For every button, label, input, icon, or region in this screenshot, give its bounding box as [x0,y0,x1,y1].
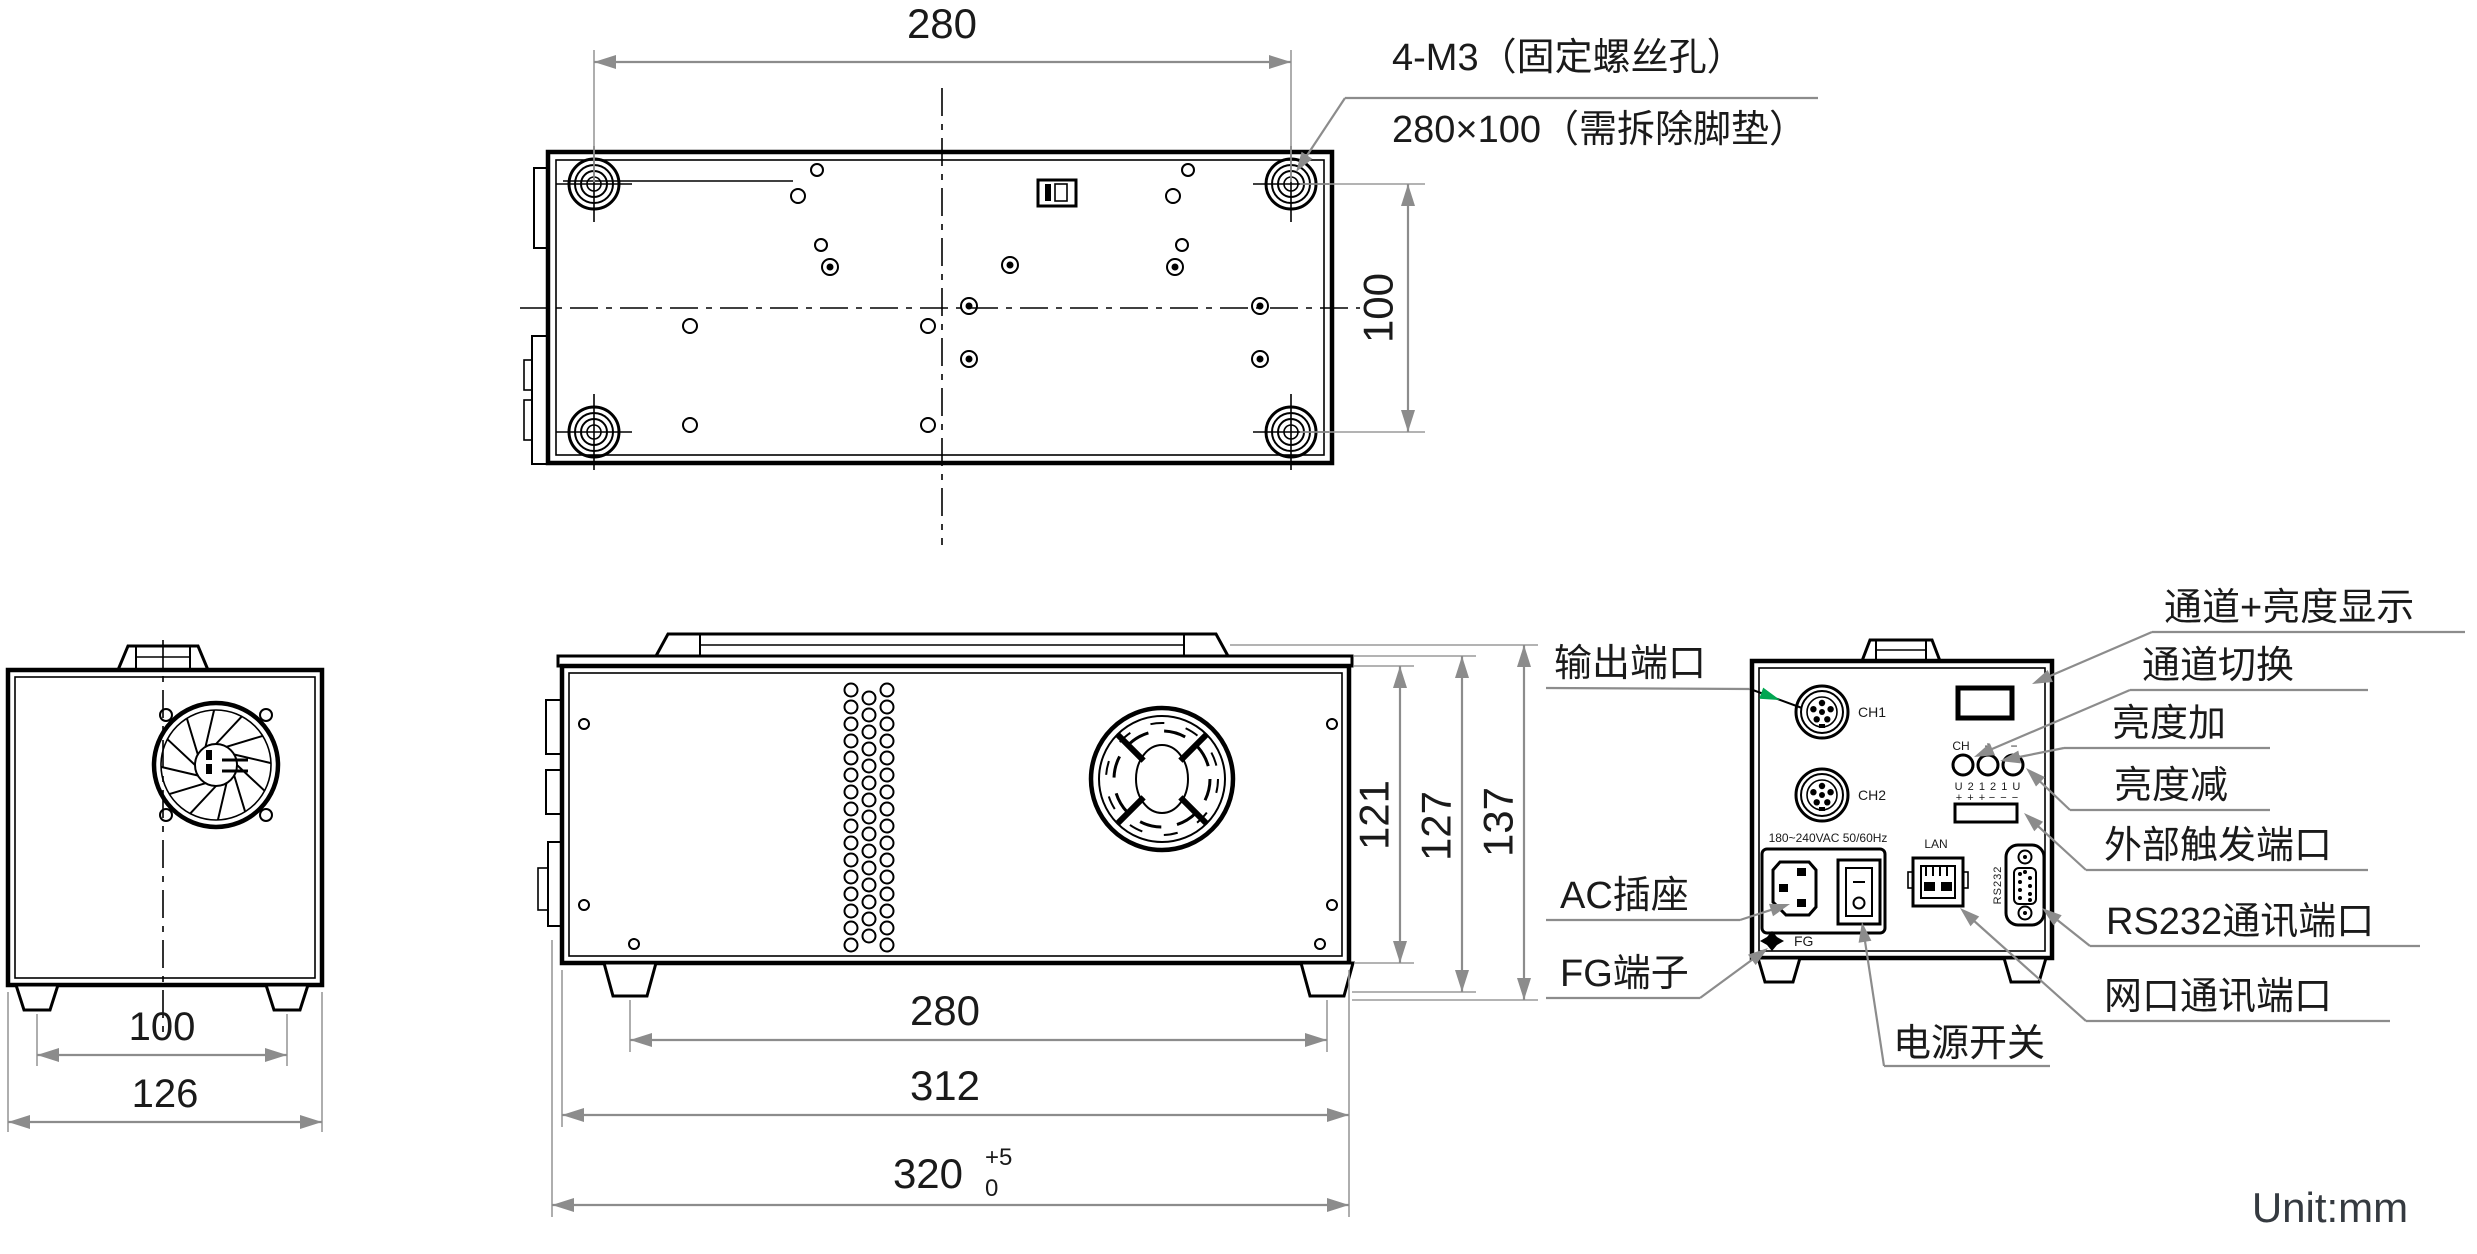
mounting-hole-callout: 4-M3（固定螺丝孔） 280×100（需拆除脚垫） [1296,37,1818,172]
engineering-drawing-canvas: 280 100 4-M3（固定螺丝孔） 280×100（需拆除脚垫） [0,0,2477,1254]
callout-power-switch-text: 电源开关 [1893,1023,2045,1065]
btn-label-ch: CH [1952,739,1969,753]
rs232-port: RS232 [1992,845,2044,925]
dim-label-127: 127 [1413,791,1460,861]
lan-label: LAN [1924,837,1947,851]
voltage-label: 180~240VAC 50/60Hz [1769,831,1888,845]
ac-module [1762,849,1885,933]
callout-display-text: 通道+亮度显示 [2164,587,2414,629]
rear-view: CH1 CH2 CH + − U 2 1 2 1 U + + + − [1546,587,2465,1066]
channel-switch-button [1953,755,1973,775]
vent-holes [845,684,894,952]
callout-output-port-text: 输出端口 [1554,643,1706,685]
rear-handle [1862,640,1940,661]
dim-label-137: 137 [1475,787,1522,857]
front-protrusions [538,700,562,926]
dim-label-280-top: 280 [907,0,977,47]
ch1-connector [1796,686,1848,738]
bottom-screw-holes [683,164,1268,432]
trigger-port [1955,804,2017,822]
dim-100-right: 100 [1300,184,1425,432]
callout-brightness-down: 亮度减 [2026,765,2270,810]
dim-121: 121 [1351,666,1415,963]
callout-lan-text: 网口通讯端口 [2104,976,2332,1018]
ch2-label: CH2 [1858,787,1886,803]
callout-output-port: 输出端口 [1546,643,1802,708]
front-handle [656,634,1228,656]
brightness-up-button [1978,755,1998,775]
callout-brightness-up: 亮度加 [2000,703,2270,763]
dim-label-320: 320 [893,1150,963,1197]
bottom-cutout [1038,180,1076,206]
callout-280x100: 280×100（需拆除脚垫） [1392,109,1807,151]
callout-rs232-text: RS232通讯端口 [2106,901,2374,943]
ch2-connector [1796,769,1848,821]
dim-tol-plus: +5 [985,1144,1012,1171]
callout-brightness-up-text: 亮度加 [2112,703,2226,745]
edge-protrusions [524,168,548,464]
rear-feet [1758,958,2046,982]
callout-trigger-port: 外部触发端口 [2024,813,2368,870]
display-window [1958,688,2012,718]
callout-fg-terminal: FG端子 [1546,948,1768,998]
front-screw-holes [579,719,1337,949]
pin-minus-label: − − − [1989,792,2019,804]
left-side-view: 100 126 [8,640,322,1132]
left-fan [154,703,278,827]
dim-tol-zero: 0 [985,1175,998,1202]
dim-label-100-feet: 100 [129,1005,196,1049]
green-arrow [1759,688,1780,700]
dim-label-100-right: 100 [1355,273,1402,343]
fg-label: FG [1794,933,1813,949]
ch1-label: CH1 [1858,704,1886,720]
lan-port: LAN [1908,837,1968,906]
front-fan [1091,708,1233,850]
front-view: 280 312 320 +5 0 121 [538,634,1538,1217]
callout-rs232-port: RS232通讯端口 [2042,901,2420,946]
callout-ac-socket-text: AC插座 [1560,875,1689,917]
power-switch [1838,860,1880,924]
drawing-svg: 280 100 4-M3（固定螺丝孔） 280×100（需拆除脚垫） [0,0,2477,1254]
dim-label-280-front: 280 [910,987,980,1034]
pin-plus-label: + + + [1956,792,1986,804]
callout-trigger-text: 外部触发端口 [2104,825,2332,867]
callout-brightness-down-text: 亮度减 [2114,765,2228,807]
rs232-label: RS232 [1992,866,2004,905]
dim-label-121: 121 [1351,780,1398,850]
unit-note: Unit:mm [2252,1184,2408,1231]
callout-power-switch: 电源开关 [1859,922,2050,1066]
bottom-view: 280 100 4-M3（固定螺丝孔） 280×100（需拆除脚垫） [520,0,1818,545]
callout-channel-switch-text: 通道切换 [2142,645,2294,687]
dim-label-312: 312 [910,1062,980,1109]
dim-280-front: 280 [630,987,1327,1052]
callout-fg-text: FG端子 [1560,953,1689,995]
dim-100-left-view: 100 [37,1005,287,1066]
dim-label-126: 126 [132,1072,199,1116]
callout-4m3: 4-M3（固定螺丝孔） [1392,37,1745,79]
